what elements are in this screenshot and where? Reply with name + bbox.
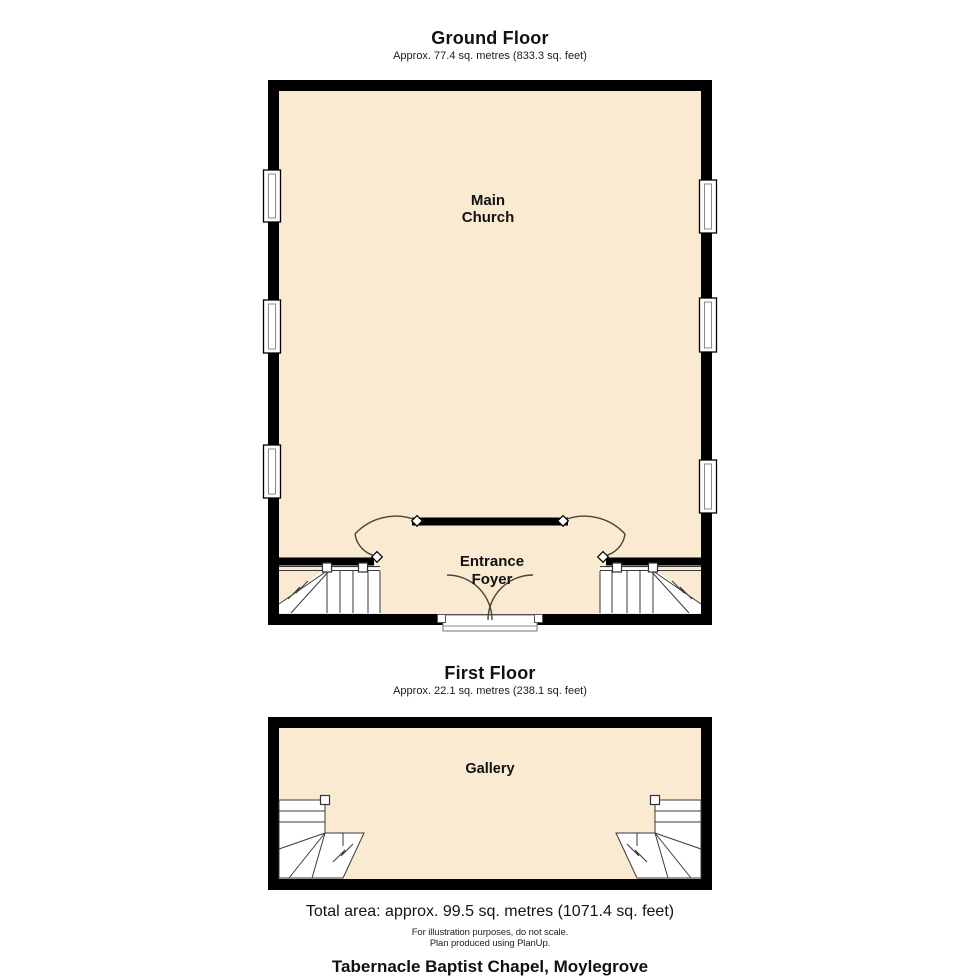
- window-icon: [264, 445, 281, 498]
- ground-floor-plan: Main Church Entrance Foyer: [255, 65, 725, 640]
- right-wall-windows: [700, 180, 717, 513]
- entrance-foyer-label-line1: Entrance: [460, 553, 524, 570]
- total-area-text: Total area: approx. 99.5 sq. metres (107…: [0, 903, 980, 921]
- disclaimer-line2: Plan produced using PlanUp.: [0, 938, 980, 949]
- first-floor-title: First Floor: [0, 663, 980, 684]
- floor-plan-page: { "colors": { "floor_fill": "#FAEAD1", "…: [0, 0, 980, 980]
- gallery-label: Gallery: [465, 761, 514, 777]
- ground-floor-footprint: [268, 80, 712, 625]
- main-church-label-line2: Church: [462, 209, 515, 226]
- disclaimer-line1: For illustration purposes, do not scale.: [0, 927, 980, 938]
- window-icon: [700, 180, 717, 233]
- window-icon: [264, 170, 281, 222]
- main-church-label-line1: Main: [471, 192, 505, 209]
- ground-floor-title: Ground Floor: [0, 28, 980, 49]
- first-floor-area: Approx. 22.1 sq. metres (238.1 sq. feet): [0, 685, 980, 697]
- window-icon: [264, 300, 281, 353]
- first-floor-plan: Gallery: [255, 700, 725, 900]
- left-wall-windows: [264, 170, 281, 498]
- window-icon: [700, 460, 717, 513]
- property-name-title: Tabernacle Baptist Chapel, Moylegrove: [0, 957, 980, 977]
- ground-floor-area: Approx. 77.4 sq. metres (833.3 sq. feet): [0, 50, 980, 62]
- entrance-foyer-label-line2: Foyer: [472, 571, 513, 588]
- window-icon: [700, 298, 717, 352]
